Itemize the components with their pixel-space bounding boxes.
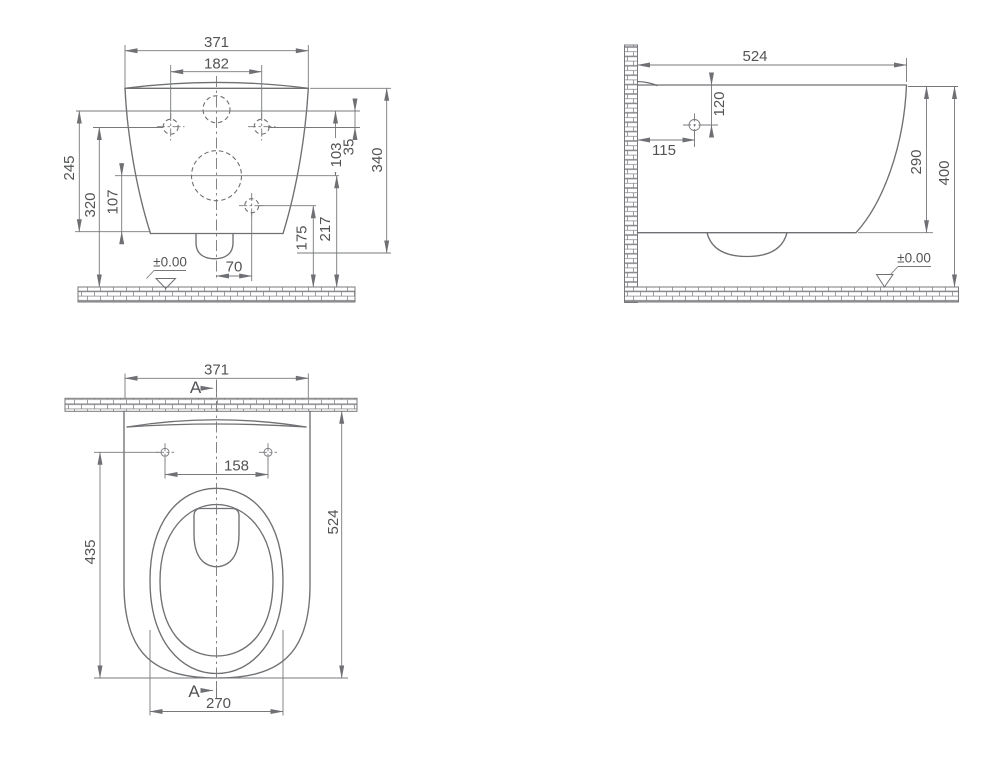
front-view: 371 182 245 320 107 103 35 340 217 175: [61, 34, 391, 302]
section-a-top-label: A: [190, 378, 202, 397]
toilet-body-side: [638, 82, 907, 257]
front-dim-340-label: 340: [369, 147, 386, 172]
top-dim-435-label: 435: [82, 539, 99, 564]
side-dim-120-label: 120: [711, 91, 728, 116]
top-dimensions: 371 158 435 524 270: [82, 362, 342, 713]
toilet-body-top: [124, 411, 310, 678]
technical-drawing-canvas: 371 182 245 320 107 103 35 340 217 175: [0, 0, 1000, 759]
front-dim-width-label: 371: [204, 34, 229, 51]
side-datum-label: ±0.00: [897, 251, 931, 266]
side-view: 524 120 115 290 400 ±0.00: [625, 45, 959, 303]
section-a-bottom-label: A: [188, 682, 200, 701]
top-dim-seat-holes-label: 158: [224, 458, 249, 475]
top-wall-hatch: [65, 398, 357, 411]
front-dim-35-label: 35: [341, 139, 358, 156]
side-extension-lines: [695, 58, 959, 233]
front-dim-175-label: 175: [294, 225, 311, 250]
drawing-page: 371 182 245 320 107 103 35 340 217 175: [0, 0, 1000, 759]
front-dim-70-label: 70: [226, 259, 243, 276]
top-dim-270-label: 270: [206, 695, 231, 712]
side-floor-hatch: [625, 287, 959, 302]
front-datum-label: ±0.00: [153, 255, 187, 270]
front-dim-hole-spacing-label: 182: [204, 56, 229, 73]
section-marker-a-top: A: [190, 378, 217, 397]
trap-outline-front: [196, 234, 233, 259]
front-floor-hatch: [78, 287, 355, 302]
trap-outline-side: [707, 233, 787, 257]
toilet-body-front: [125, 82, 308, 258]
side-dim-depth-label: 524: [742, 48, 767, 65]
side-dim-115-label: 115: [652, 142, 676, 159]
front-dim-245-label: 245: [61, 155, 78, 180]
flush-opening: [194, 509, 239, 567]
front-dimensions: 371 182 245 320 107 103 35 340 217 175: [61, 34, 387, 287]
top-dim-width-label: 371: [204, 362, 229, 379]
side-wall-hatch: [625, 45, 638, 303]
front-dim-217-label: 217: [317, 216, 334, 241]
side-dim-290-label: 290: [908, 149, 925, 174]
bowl-front-curve: [856, 85, 907, 233]
front-dim-320-label: 320: [82, 192, 99, 217]
top-dim-524-label: 524: [325, 509, 342, 534]
front-datum-symbol: ±0.00: [147, 255, 187, 289]
side-datum-symbol: ±0.00: [877, 251, 932, 288]
side-dim-400-label: 400: [936, 160, 953, 185]
front-dim-107-label: 107: [105, 189, 122, 214]
top-view: A A 371 158 435 524: [65, 362, 357, 716]
